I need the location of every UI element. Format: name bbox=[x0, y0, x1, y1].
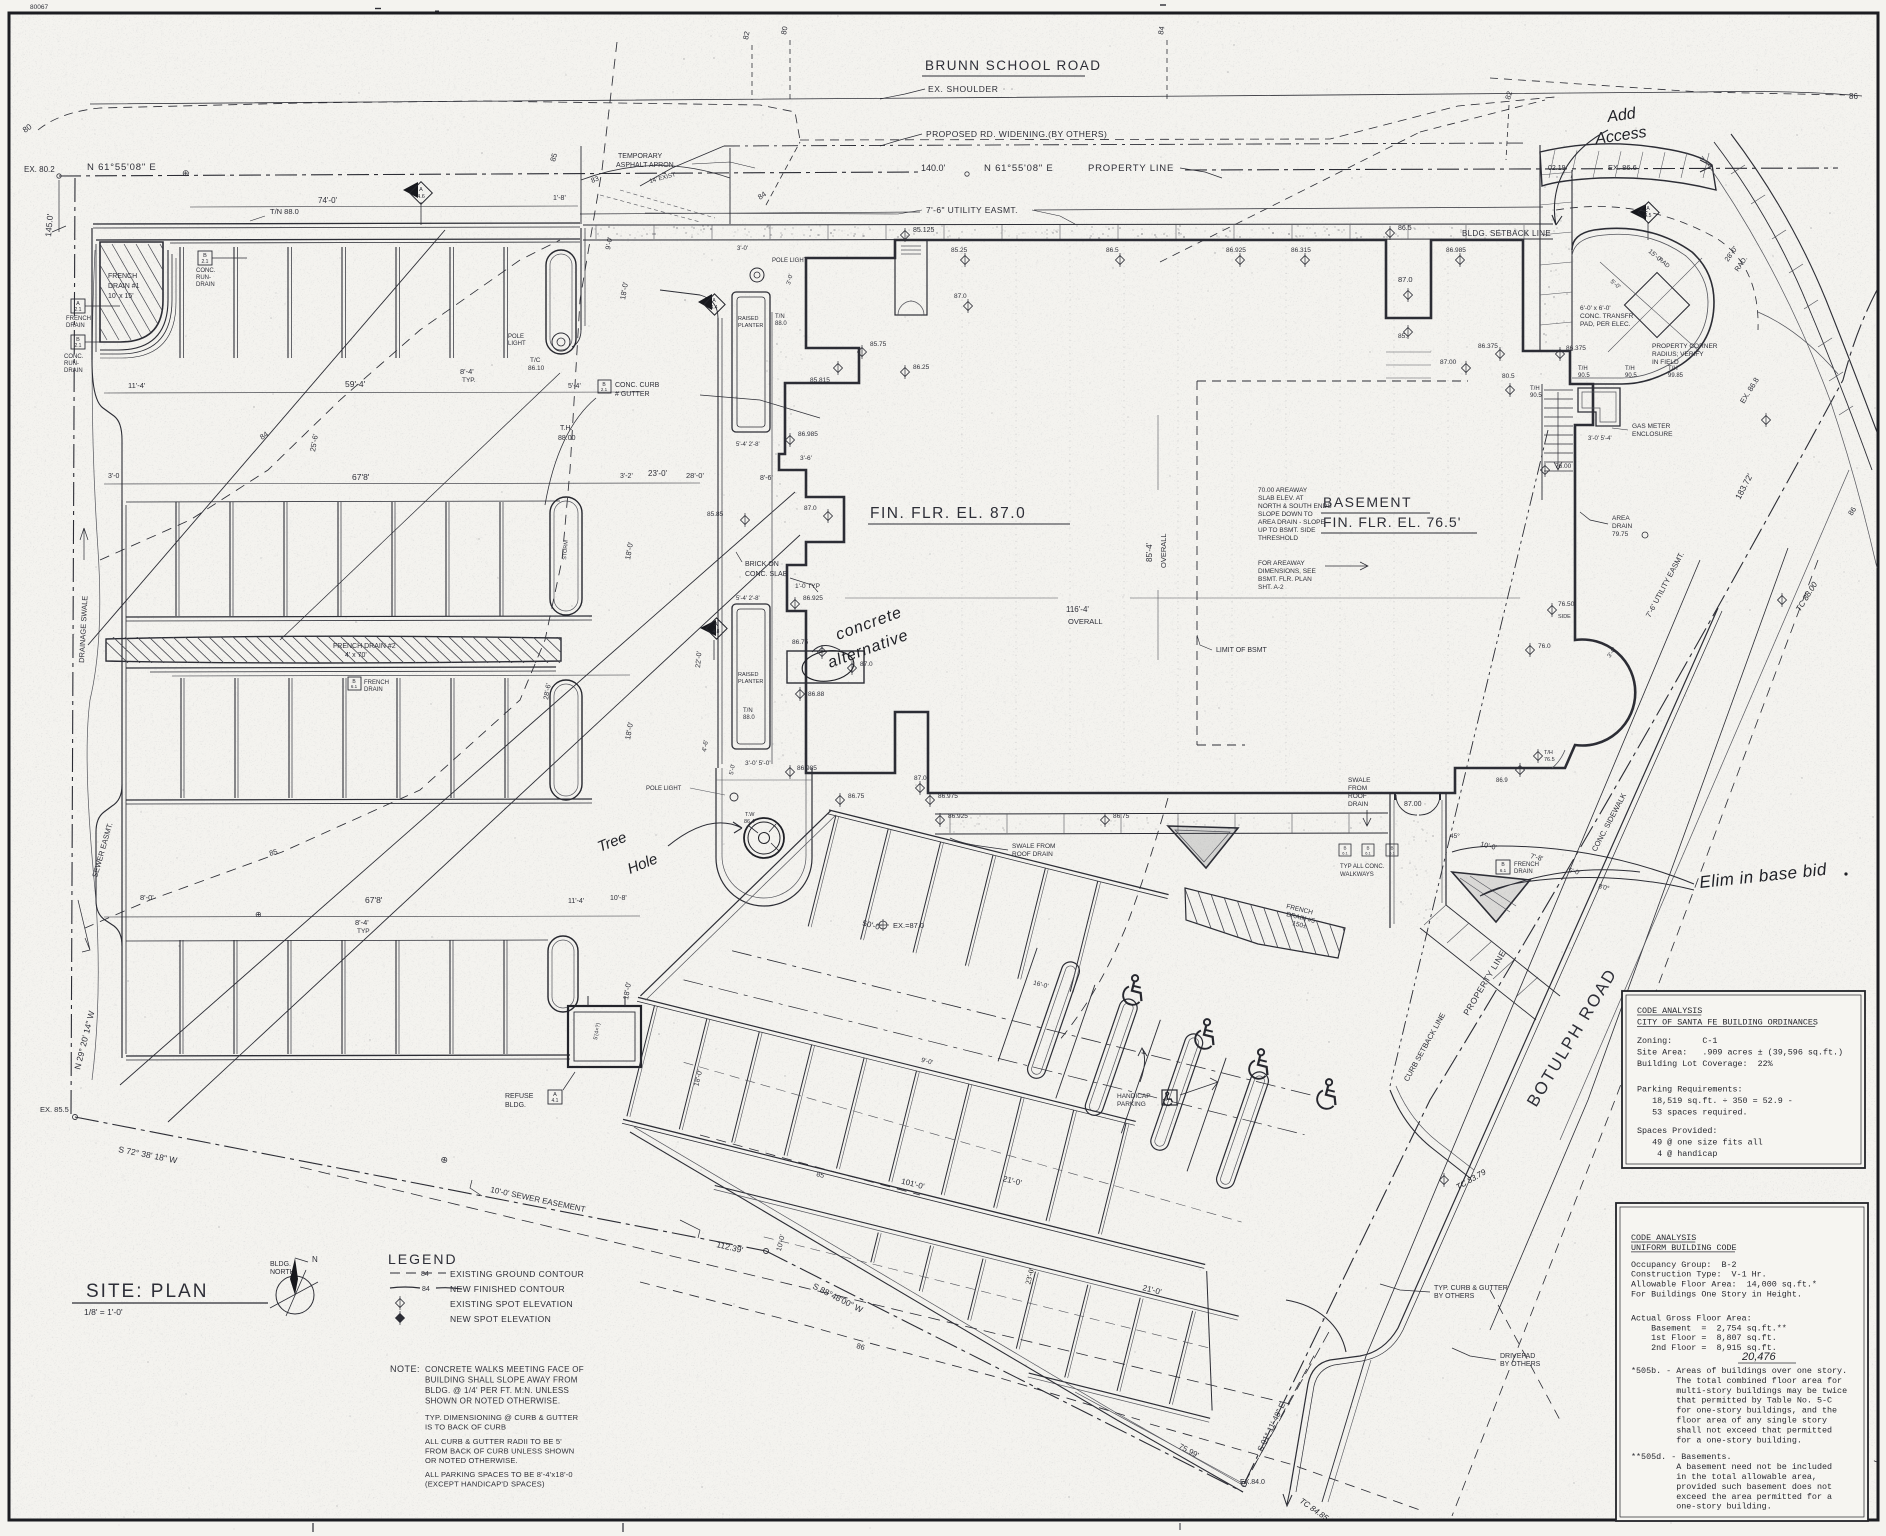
svg-text:TEMPORARY: TEMPORARY bbox=[618, 153, 663, 160]
svg-text:116'-4': 116'-4' bbox=[1066, 605, 1089, 614]
svg-text:T/C: T/C bbox=[530, 357, 541, 364]
svg-text:PROPERTY CORNER: PROPERTY CORNER bbox=[1652, 343, 1718, 350]
svg-text:EX. 80.2: EX. 80.2 bbox=[24, 165, 55, 174]
svg-text:ALL PARKING SPACES TO BE 8'-4': ALL PARKING SPACES TO BE 8'-4'x18'-0 bbox=[425, 1470, 573, 1479]
svg-text:FRENCH: FRENCH bbox=[364, 680, 389, 686]
svg-text:86.75: 86.75 bbox=[792, 639, 809, 646]
svg-text:DRAIN: DRAIN bbox=[1348, 801, 1369, 808]
svg-text:2.1: 2.1 bbox=[75, 343, 82, 349]
svg-text:85.815: 85.815 bbox=[810, 377, 830, 384]
svg-text:EX. SHOULDER: EX. SHOULDER bbox=[928, 84, 999, 94]
svg-text:PROPERTY LINE: PROPERTY LINE bbox=[1088, 163, 1174, 174]
svg-text:ENCLOSURE: ENCLOSURE bbox=[1632, 431, 1673, 438]
svg-text:Parking Requirements:: Parking Requirements: bbox=[1637, 1085, 1743, 1095]
svg-text:N 61°55'08" E: N 61°55'08" E bbox=[984, 163, 1054, 174]
svg-text:140.0': 140.0' bbox=[921, 163, 946, 173]
svg-text:DRAIN: DRAIN bbox=[64, 368, 83, 374]
svg-text:20,476: 20,476 bbox=[1741, 1351, 1777, 1363]
svg-text:EX.=87.0: EX.=87.0 bbox=[893, 921, 924, 930]
svg-text:POLE: POLE bbox=[508, 334, 524, 340]
svg-text:BLDG.: BLDG. bbox=[505, 1102, 526, 1109]
svg-text:REFUSE: REFUSE bbox=[505, 1093, 534, 1100]
svg-text:90.5: 90.5 bbox=[1578, 373, 1590, 379]
svg-text:UP TO BSMT. SIDE: UP TO BSMT. SIDE bbox=[1258, 527, 1316, 534]
svg-text:87.0: 87.0 bbox=[914, 775, 927, 782]
svg-text:59'-4': 59'-4' bbox=[345, 379, 366, 389]
svg-text:82: 82 bbox=[741, 31, 751, 41]
svg-text:84: 84 bbox=[422, 1286, 430, 1293]
svg-text:76.0: 76.0 bbox=[1538, 643, 1551, 650]
svg-text:1st Floor = 8,807 sq.ft.: 1st Floor = 8,807 sq.ft. bbox=[1631, 1333, 1777, 1343]
svg-text:74'-0': 74'-0' bbox=[318, 196, 338, 205]
svg-text:Construction Type: V-1 Hr.: Construction Type: V-1 Hr. bbox=[1631, 1270, 1767, 1280]
svg-text:Building Lot Coverage: 22%: Building Lot Coverage: 22% bbox=[1637, 1059, 1774, 1069]
svg-text:T/H: T/H bbox=[1544, 750, 1553, 756]
svg-text:NEW FINISHED CONTOUR: NEW FINISHED CONTOUR bbox=[450, 1284, 565, 1294]
svg-text:DRAIN: DRAIN bbox=[1612, 523, 1633, 530]
svg-text:6.1: 6.1 bbox=[351, 684, 358, 689]
svg-text:T/H: T/H bbox=[1530, 386, 1540, 392]
svg-text:EX.84.0: EX.84.0 bbox=[1240, 1479, 1265, 1486]
svg-text:87.00: 87.00 bbox=[1404, 801, 1422, 808]
svg-text:for a one-story building.: for a one-story building. bbox=[1631, 1435, 1802, 1445]
svg-text:84: 84 bbox=[1156, 26, 1166, 36]
svg-text:LIGHT: LIGHT bbox=[508, 341, 526, 347]
svg-text:FRENCH: FRENCH bbox=[66, 316, 91, 322]
svg-text:TYP. CURB & GUTTER: TYP. CURB & GUTTER bbox=[1434, 1285, 1508, 1292]
svg-text:OVERALL: OVERALL bbox=[1159, 533, 1168, 568]
svg-text:4.8: 4.8 bbox=[713, 629, 720, 635]
svg-text:BUILDING SHALL SLOPE AWAY FROM: BUILDING SHALL SLOPE AWAY FROM bbox=[425, 1376, 578, 1385]
svg-text:86.75: 86.75 bbox=[848, 793, 865, 800]
svg-text:FROM: FROM bbox=[1348, 785, 1367, 792]
svg-text:87.0: 87.0 bbox=[860, 661, 873, 668]
svg-text:BY OTHERS: BY OTHERS bbox=[1434, 1293, 1475, 1300]
svg-text:provided such basement does no: provided such basement does not bbox=[1631, 1482, 1832, 1492]
svg-text:one-story building.: one-story building. bbox=[1631, 1502, 1772, 1512]
svg-text:A: A bbox=[419, 187, 423, 193]
svg-text:BRICK ON: BRICK ON bbox=[745, 561, 779, 568]
svg-text:ASPHALT APRON: ASPHALT APRON bbox=[616, 162, 674, 169]
svg-text:5'-4' 2'-8': 5'-4' 2'-8' bbox=[736, 442, 760, 448]
svg-text:Allowable Floor Area: 14,000: Allowable Floor Area: 14,000 sq.ft.* bbox=[1631, 1280, 1817, 1290]
svg-text:FROM BACK OF CURB UNLESS SHOWN: FROM BACK OF CURB UNLESS SHOWN bbox=[425, 1447, 574, 1456]
svg-text:53 spaces required.: 53 spaces required. bbox=[1637, 1108, 1748, 1118]
svg-text:1/8' = 1'-0': 1/8' = 1'-0' bbox=[84, 1307, 123, 1317]
svg-text:PROPOSED RD. WIDENING.(BY OTHE: PROPOSED RD. WIDENING.(BY OTHERS) bbox=[926, 129, 1107, 139]
svg-text:DRAIN: DRAIN bbox=[66, 323, 85, 329]
svg-text:67'8': 67'8' bbox=[352, 472, 370, 482]
svg-text:22'-0': 22'-0' bbox=[695, 651, 703, 668]
svg-text:N 61°55'08" E: N 61°55'08" E bbox=[87, 162, 157, 173]
svg-text:DRIVEPAD: DRIVEPAD bbox=[1500, 1353, 1535, 1360]
svg-text:4 @ handicap: 4 @ handicap bbox=[1637, 1149, 1717, 1159]
svg-text:87.0: 87.0 bbox=[1398, 275, 1413, 284]
svg-text:4.6: 4.6 bbox=[417, 194, 425, 200]
svg-text:⊕: ⊕ bbox=[182, 168, 190, 178]
svg-text:THRESHOLD: THRESHOLD bbox=[1258, 535, 1298, 542]
svg-text:6.1: 6.1 bbox=[1389, 851, 1395, 856]
svg-text:87.0: 87.0 bbox=[804, 505, 817, 512]
svg-text:T/H: T/H bbox=[1668, 366, 1678, 372]
svg-text:145.0': 145.0' bbox=[43, 213, 55, 237]
svg-text:Zoning: C-1: Zoning: C-1 bbox=[1637, 1036, 1717, 1046]
svg-text:SHT. A-2: SHT. A-2 bbox=[1258, 584, 1284, 591]
svg-text:1'-8': 1'-8' bbox=[553, 195, 566, 202]
svg-text:that permitted by Table No. 5-: that permitted by Table No. 5-C bbox=[1631, 1396, 1832, 1406]
svg-text:# GUTTER: # GUTTER bbox=[615, 391, 650, 398]
svg-text:CONC.: CONC. bbox=[64, 354, 84, 360]
svg-text:88.0: 88.0 bbox=[775, 321, 787, 327]
svg-text:CITY OF SANTA FE BUILDING ORDI: CITY OF SANTA FE BUILDING ORDINANCES bbox=[1637, 1018, 1818, 1028]
svg-text:80.5: 80.5 bbox=[1502, 373, 1515, 380]
svg-text:AREA: AREA bbox=[1612, 515, 1630, 522]
svg-text:floor area of any single story: floor area of any single story bbox=[1631, 1416, 1827, 1426]
svg-text:LIMIT OF BSMT: LIMIT OF BSMT bbox=[1216, 647, 1268, 654]
svg-text:NORTH & SOUTH ENDS: NORTH & SOUTH ENDS bbox=[1258, 503, 1332, 510]
svg-text:86.25: 86.25 bbox=[913, 364, 930, 371]
svg-text:EXISTING GROUND CONTOUR: EXISTING GROUND CONTOUR bbox=[450, 1269, 584, 1279]
svg-text:A basement need not be include: A basement need not be included bbox=[1631, 1462, 1832, 1472]
svg-text:10'-8': 10'-8' bbox=[610, 895, 627, 902]
svg-text:ALL CURB & GUTTER RADII TO BE: ALL CURB & GUTTER RADII TO BE 5' bbox=[425, 1437, 562, 1446]
svg-text:86.4: 86.4 bbox=[744, 819, 755, 825]
svg-text:Actual Gross Floor Area:: Actual Gross Floor Area: bbox=[1631, 1313, 1752, 1323]
svg-text:Site Area: .909 acres ± (39,: Site Area: .909 acres ± (39,596 sq.ft.) bbox=[1637, 1048, 1843, 1058]
svg-text:2.1: 2.1 bbox=[75, 307, 82, 313]
svg-text:For Buildings One Story in Hei: For Buildings One Story in Height. bbox=[1631, 1290, 1802, 1300]
svg-text:86: 86 bbox=[1849, 92, 1858, 101]
svg-text:ROOF: ROOF bbox=[1348, 793, 1367, 800]
svg-text:3'-0' 5'-0': 3'-0' 5'-0' bbox=[745, 760, 771, 767]
svg-text:4' x 70': 4' x 70' bbox=[345, 652, 367, 659]
svg-text:TYP. DIMENSIONING @ CURB & GUT: TYP. DIMENSIONING @ CURB & GUTTER bbox=[425, 1413, 579, 1422]
svg-text:86.315: 86.315 bbox=[1291, 247, 1311, 254]
svg-text:6'-0' x 6'-0': 6'-0' x 6'-0' bbox=[1580, 305, 1611, 312]
svg-text:Occupancy Group: B-2: Occupancy Group: B-2 bbox=[1631, 1260, 1737, 1270]
svg-text:SLAB ELEV. AT: SLAB ELEV. AT bbox=[1258, 495, 1304, 502]
svg-text:**505d. - Basements.: **505d. - Basements. bbox=[1631, 1452, 1732, 1462]
svg-text:CONC. CURB: CONC. CURB bbox=[615, 382, 660, 389]
svg-text:87.0: 87.0 bbox=[954, 293, 967, 300]
svg-text:GAS METER: GAS METER bbox=[1632, 423, 1671, 430]
svg-text:TYP: TYP bbox=[357, 928, 370, 935]
svg-text:86.985: 86.985 bbox=[1446, 247, 1466, 254]
svg-text:The total combined floor area: The total combined floor area for bbox=[1631, 1376, 1842, 1386]
svg-text:DRAIN: DRAIN bbox=[196, 282, 215, 288]
svg-text:BSMT. FLR. PLAN: BSMT. FLR. PLAN bbox=[1258, 576, 1312, 583]
svg-text:45°: 45° bbox=[1450, 832, 1460, 840]
svg-text:POLE LIGHT: POLE LIGHT bbox=[772, 258, 808, 264]
svg-text:86.375: 86.375 bbox=[1478, 343, 1498, 350]
svg-text:PLANTER: PLANTER bbox=[738, 679, 763, 685]
svg-text:11'-4': 11'-4' bbox=[128, 381, 146, 390]
svg-text:T.W: T.W bbox=[745, 812, 755, 818]
svg-text:Spaces Provided:: Spaces Provided: bbox=[1637, 1126, 1717, 1136]
svg-text:FRENCH: FRENCH bbox=[1514, 862, 1539, 868]
svg-text:RUN-: RUN- bbox=[64, 361, 79, 367]
svg-text:11'-4': 11'-4' bbox=[568, 898, 584, 905]
svg-text:multi-story buildings may be t: multi-story buildings may be twice bbox=[1631, 1386, 1847, 1396]
svg-text:SIDE: SIDE bbox=[1558, 614, 1571, 620]
svg-text:EXISTING SPOT ELEVATION: EXISTING SPOT ELEVATION bbox=[450, 1299, 573, 1309]
svg-text:28'-0': 28'-0' bbox=[686, 471, 704, 480]
svg-text:T/N 88.0: T/N 88.0 bbox=[270, 207, 299, 216]
svg-text:T/N: T/N bbox=[775, 314, 785, 320]
svg-text:49 @ one size fits all: 49 @ one size fits all bbox=[1637, 1138, 1763, 1148]
svg-text:T/H: T/H bbox=[1625, 366, 1635, 372]
svg-text:⊕: ⊕ bbox=[255, 910, 262, 919]
svg-text:76.5: 76.5 bbox=[1544, 757, 1555, 763]
svg-text:87.00: 87.00 bbox=[1440, 359, 1457, 366]
svg-text:SLOPE DOWN TO: SLOPE DOWN TO bbox=[1258, 511, 1313, 518]
svg-text:SHOWN OR NOTED OTHERWISE.: SHOWN OR NOTED OTHERWISE. bbox=[425, 1397, 560, 1406]
svg-text:in the total allowable area,: in the total allowable area, bbox=[1631, 1472, 1817, 1482]
svg-text:FOR AREAWAY: FOR AREAWAY bbox=[1258, 560, 1305, 567]
svg-text:10' x 15': 10' x 15' bbox=[108, 293, 134, 300]
svg-text:85'-4': 85'-4' bbox=[1145, 542, 1154, 562]
svg-text:SITE: PLAN: SITE: PLAN bbox=[86, 1281, 208, 1302]
svg-text:67'8': 67'8' bbox=[365, 895, 383, 905]
svg-text:BLDG. SETBACK LINE: BLDG. SETBACK LINE bbox=[1462, 229, 1551, 238]
svg-text:86.985: 86.985 bbox=[798, 431, 818, 438]
svg-text:BRUNN SCHOOL ROAD: BRUNN SCHOOL ROAD bbox=[925, 58, 1102, 73]
svg-text:BASEMENT: BASEMENT bbox=[1323, 494, 1412, 510]
svg-text:AREA DRAIN - SLOPE: AREA DRAIN - SLOPE bbox=[1258, 519, 1325, 526]
svg-text:OR NOTED OTHERWISE.: OR NOTED OTHERWISE. bbox=[425, 1456, 518, 1465]
svg-text:CONCRETE WALKS MEETING FACE OF: CONCRETE WALKS MEETING FACE OF bbox=[425, 1365, 584, 1374]
svg-text:5'-4' 2'-8': 5'-4' 2'-8' bbox=[736, 596, 760, 602]
svg-text:70.00 AREAWAY: 70.00 AREAWAY bbox=[1258, 487, 1308, 494]
svg-text:6.1: 6.1 bbox=[1342, 851, 1348, 856]
svg-text:Basement = 2,754 sq.ft.**: Basement = 2,754 sq.ft.** bbox=[1631, 1323, 1787, 1333]
svg-text:(EXCEPT HANDICAP'D SPACES): (EXCEPT HANDICAP'D SPACES) bbox=[425, 1480, 545, 1489]
svg-text:N: N bbox=[312, 1255, 318, 1264]
svg-text:85.: 85. bbox=[1398, 333, 1407, 340]
svg-text:BY OTHERS: BY OTHERS bbox=[1500, 1361, 1541, 1368]
svg-text:*505b. - Areas of buildings ov: *505b. - Areas of buildings over one sto… bbox=[1631, 1366, 1847, 1376]
svg-text:EX. 86.6: EX. 86.6 bbox=[1608, 163, 1637, 172]
svg-text:3'-0': 3'-0' bbox=[737, 246, 748, 252]
svg-text:90.5: 90.5 bbox=[1530, 393, 1542, 399]
svg-text:PARKING: PARKING bbox=[1117, 1101, 1146, 1108]
svg-text:18,519 sq.ft. ÷ 350 = 52.9 -: 18,519 sq.ft. ÷ 350 = 52.9 - bbox=[1637, 1096, 1793, 1106]
svg-text:RAISED: RAISED bbox=[738, 316, 759, 322]
svg-text:76.50: 76.50 bbox=[1558, 601, 1575, 608]
svg-text:exceed the area permitted for: exceed the area permitted for a bbox=[1631, 1492, 1832, 1502]
svg-text:86.5: 86.5 bbox=[1106, 247, 1119, 254]
svg-text:86.5: 86.5 bbox=[1398, 225, 1412, 232]
svg-text:80067: 80067 bbox=[30, 4, 48, 11]
svg-text:99.85: 99.85 bbox=[1668, 373, 1684, 379]
svg-text:DIMENSIONS, SEE: DIMENSIONS, SEE bbox=[1258, 568, 1316, 575]
svg-text:84: 84 bbox=[421, 1271, 429, 1278]
svg-text:8'-0': 8'-0' bbox=[140, 893, 154, 902]
svg-text:23'-0': 23'-0' bbox=[648, 469, 668, 478]
svg-text:NEW SPOT ELEVATION: NEW SPOT ELEVATION bbox=[450, 1314, 551, 1324]
svg-text:POLE LIGHT: POLE LIGHT bbox=[646, 786, 682, 792]
svg-text:85.25: 85.25 bbox=[951, 247, 968, 254]
svg-text:CONC. SLAB: CONC. SLAB bbox=[745, 571, 788, 578]
svg-text:TYP ALL CONC.: TYP ALL CONC. bbox=[1340, 864, 1385, 870]
svg-text:80: 80 bbox=[779, 26, 789, 36]
svg-text:RADIUS; VERIFY: RADIUS; VERIFY bbox=[1652, 351, 1704, 358]
svg-text:TYP.: TYP. bbox=[462, 377, 476, 384]
svg-text:2.1: 2.1 bbox=[202, 259, 209, 265]
svg-text:3'-0' 5'-4': 3'-0' 5'-4' bbox=[1588, 436, 1612, 442]
svg-text:02.19: 02.19 bbox=[1548, 165, 1566, 172]
svg-text:6.1: 6.1 bbox=[1365, 851, 1371, 856]
svg-text:3'-6': 3'-6' bbox=[800, 455, 812, 462]
svg-text:NOTE:: NOTE: bbox=[390, 1364, 420, 1374]
svg-text:T/N: T/N bbox=[743, 708, 753, 714]
svg-text:OVERALL: OVERALL bbox=[1068, 617, 1103, 626]
svg-text:CONC. TRANSFR: CONC. TRANSFR bbox=[1580, 313, 1634, 320]
svg-text:CODE ANALYSIS: CODE ANALYSIS bbox=[1637, 1006, 1702, 1016]
svg-text:6.1: 6.1 bbox=[1500, 868, 1507, 873]
svg-text:CODE ANALYSIS: CODE ANALYSIS bbox=[1631, 1233, 1696, 1243]
svg-text:86.88: 86.88 bbox=[808, 691, 825, 698]
svg-text:88.0: 88.0 bbox=[743, 715, 755, 721]
svg-text:RUN-: RUN- bbox=[196, 275, 211, 281]
svg-text:8'-6': 8'-6' bbox=[760, 475, 773, 482]
svg-text:HANDICAP: HANDICAP bbox=[1117, 1093, 1151, 1100]
svg-text:PAD, PER ELEC.: PAD, PER ELEC. bbox=[1580, 321, 1631, 328]
svg-text:85.125: 85.125 bbox=[913, 227, 935, 234]
svg-text:7'-6" UTILITY EASMT.: 7'-6" UTILITY EASMT. bbox=[926, 205, 1018, 215]
svg-text:SWALE: SWALE bbox=[1348, 777, 1371, 784]
svg-text:79.75: 79.75 bbox=[1612, 531, 1629, 538]
svg-text:BLDG. @ 1/4' PER FT. M:N. UNLE: BLDG. @ 1/4' PER FT. M:N. UNLESS bbox=[425, 1386, 569, 1395]
svg-text:SWALE FROM: SWALE FROM bbox=[1012, 843, 1055, 850]
svg-text:DRAIN: DRAIN bbox=[1514, 869, 1533, 875]
svg-text:IN FIELD: IN FIELD bbox=[1652, 359, 1679, 366]
svg-text:2.1: 2.1 bbox=[601, 387, 608, 392]
svg-text:WALKWAYS: WALKWAYS bbox=[1340, 872, 1374, 878]
svg-text:86.925: 86.925 bbox=[803, 595, 823, 602]
svg-text:CONC.: CONC. bbox=[196, 268, 216, 274]
svg-text:4.5: 4.5 bbox=[1645, 213, 1652, 219]
svg-text:3'-2': 3'-2' bbox=[620, 473, 633, 480]
svg-text:T/H: T/H bbox=[1578, 366, 1588, 372]
svg-text:86.925: 86.925 bbox=[1226, 247, 1246, 254]
svg-text:86.375: 86.375 bbox=[1566, 345, 1586, 352]
svg-text:85.85: 85.85 bbox=[707, 511, 724, 518]
svg-text:BLDG.: BLDG. bbox=[270, 1261, 291, 1268]
svg-text:for one-story buildings, and t: for one-story buildings, and the bbox=[1631, 1406, 1837, 1416]
svg-text:shall not exceed that permitte: shall not exceed that permitted bbox=[1631, 1425, 1832, 1435]
svg-text:86.9: 86.9 bbox=[1496, 778, 1508, 784]
svg-text:EX. 85.5: EX. 85.5 bbox=[40, 1105, 69, 1114]
svg-text:85.75: 85.75 bbox=[870, 341, 887, 348]
svg-text:UNIFORM BUILDING CODE: UNIFORM BUILDING CODE bbox=[1631, 1243, 1737, 1253]
svg-text:FRENCH DRAIN #2: FRENCH DRAIN #2 bbox=[333, 643, 396, 650]
svg-text:8'-4': 8'-4' bbox=[355, 918, 369, 927]
svg-text:3'-0: 3'-0 bbox=[108, 473, 120, 480]
svg-text:RAISED: RAISED bbox=[738, 672, 759, 678]
svg-text:90.5: 90.5 bbox=[1625, 373, 1637, 379]
svg-text:DRAIN #1: DRAIN #1 bbox=[108, 283, 140, 290]
svg-text:DRAIN: DRAIN bbox=[364, 687, 383, 693]
svg-text:PLANTER: PLANTER bbox=[738, 323, 763, 329]
svg-text:4.4: 4.4 bbox=[711, 305, 718, 311]
svg-text:IS TO BACK OF CURB: IS TO BACK OF CURB bbox=[425, 1423, 506, 1432]
svg-text:4.1: 4.1 bbox=[552, 1098, 559, 1104]
svg-text:LEGEND: LEGEND bbox=[388, 1251, 458, 1267]
svg-text:1'-0 TYP: 1'-0 TYP bbox=[795, 583, 820, 590]
svg-text:86.10: 86.10 bbox=[528, 365, 545, 372]
svg-text:FRENCH: FRENCH bbox=[108, 273, 137, 280]
svg-text:FIN. FLR. EL. 87.0: FIN. FLR. EL. 87.0 bbox=[870, 505, 1026, 522]
svg-text:FIN. FLR. EL. 76.5': FIN. FLR. EL. 76.5' bbox=[1323, 514, 1461, 530]
svg-text:8'-4': 8'-4' bbox=[460, 367, 474, 376]
